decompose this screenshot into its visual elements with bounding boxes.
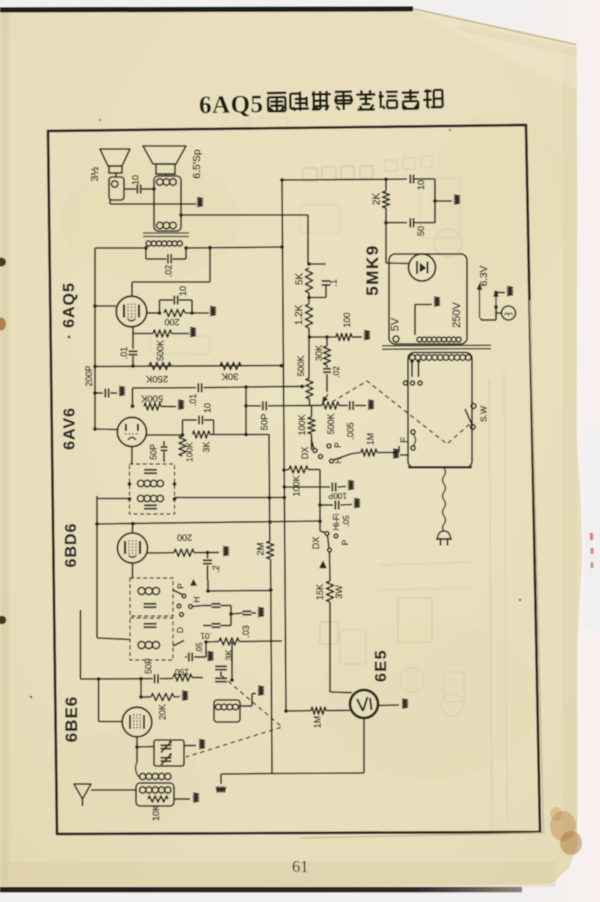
svg-text:10: 10 bbox=[416, 180, 426, 190]
svg-text:.01: .01 bbox=[200, 631, 212, 640]
svg-text:P: P bbox=[175, 583, 185, 589]
svg-text:1M: 1M bbox=[365, 433, 375, 446]
svg-text:.01: .01 bbox=[119, 347, 129, 360]
svg-text:100: 100 bbox=[342, 312, 352, 327]
svg-text:2K: 2K bbox=[372, 193, 383, 206]
svg-text:DX: DX bbox=[300, 447, 310, 460]
svg-text:250V: 250V bbox=[451, 301, 463, 327]
svg-text:61: 61 bbox=[292, 857, 309, 876]
svg-text:6AV6: 6AV6 bbox=[62, 407, 79, 450]
svg-text:150: 150 bbox=[175, 667, 189, 677]
svg-text:.02: .02 bbox=[163, 265, 173, 278]
svg-text:100K: 100K bbox=[297, 414, 307, 435]
svg-text:10: 10 bbox=[130, 175, 140, 185]
svg-text:250K: 250K bbox=[145, 373, 168, 384]
svg-text:30K: 30K bbox=[221, 370, 239, 381]
svg-text:1.2K: 1.2K bbox=[294, 304, 305, 325]
svg-text:6.3V: 6.3V bbox=[479, 265, 490, 286]
svg-text:.03: .03 bbox=[241, 625, 251, 638]
svg-text:6AQ5: 6AQ5 bbox=[199, 91, 264, 119]
svg-text:6AQ5: 6AQ5 bbox=[61, 282, 78, 328]
svg-text:D: D bbox=[175, 627, 185, 633]
svg-text:50P: 50P bbox=[148, 444, 158, 460]
svg-text:1M: 1M bbox=[312, 716, 322, 729]
svg-text:6BE6: 6BE6 bbox=[62, 696, 81, 743]
svg-text:.05: .05 bbox=[195, 642, 204, 654]
svg-text:10K: 10K bbox=[151, 805, 161, 821]
svg-text:.005: .005 bbox=[345, 422, 355, 440]
svg-text:500K: 500K bbox=[155, 340, 165, 361]
svg-text:.01: .01 bbox=[188, 394, 198, 407]
svg-text:3W: 3W bbox=[334, 585, 344, 599]
svg-text:DX: DX bbox=[311, 537, 321, 550]
svg-text:H: H bbox=[191, 596, 201, 602]
svg-text:2M: 2M bbox=[256, 542, 267, 555]
svg-text:F: F bbox=[399, 437, 410, 443]
svg-text:.1: .1 bbox=[328, 279, 338, 287]
svg-text:5MK9: 5MK9 bbox=[363, 244, 382, 295]
svg-text:500K: 500K bbox=[296, 355, 306, 376]
svg-text:100K: 100K bbox=[291, 475, 301, 496]
svg-text:10: 10 bbox=[178, 286, 188, 296]
svg-text:6.5′Sp: 6.5′Sp bbox=[191, 149, 203, 179]
svg-text:500K: 500K bbox=[326, 413, 336, 434]
svg-text:500K: 500K bbox=[140, 392, 163, 403]
svg-text:50P: 50P bbox=[260, 414, 271, 431]
svg-text:50P: 50P bbox=[143, 658, 153, 674]
svg-text:10: 10 bbox=[202, 403, 212, 413]
svg-text:100K: 100K bbox=[184, 442, 194, 462]
svg-text:30K: 30K bbox=[314, 345, 324, 361]
svg-text:Hi-Fi: Hi-Fi bbox=[332, 513, 341, 530]
svg-text:P: P bbox=[332, 442, 342, 448]
svg-text:6BD6: 6BD6 bbox=[63, 523, 80, 568]
svg-text:15K: 15K bbox=[315, 584, 325, 600]
svg-text:6E5: 6E5 bbox=[373, 649, 390, 682]
svg-text:3K: 3K bbox=[201, 441, 211, 452]
svg-text:3½: 3½ bbox=[89, 166, 101, 181]
svg-text:200: 200 bbox=[164, 317, 179, 327]
svg-text:5V: 5V bbox=[389, 317, 401, 331]
svg-text:200: 200 bbox=[177, 533, 192, 543]
svg-text:200P: 200P bbox=[84, 365, 94, 386]
svg-text:S.W: S.W bbox=[478, 406, 488, 422]
svg-text:P: P bbox=[340, 539, 350, 545]
svg-text:100P: 100P bbox=[328, 491, 347, 500]
svg-text:.02: .02 bbox=[331, 366, 341, 378]
svg-text:.2: .2 bbox=[211, 565, 221, 573]
svg-text:5K: 5K bbox=[295, 273, 306, 286]
svg-text:50: 50 bbox=[416, 226, 426, 236]
svg-text:20K: 20K bbox=[157, 704, 167, 720]
svg-text:.05: .05 bbox=[341, 515, 351, 527]
